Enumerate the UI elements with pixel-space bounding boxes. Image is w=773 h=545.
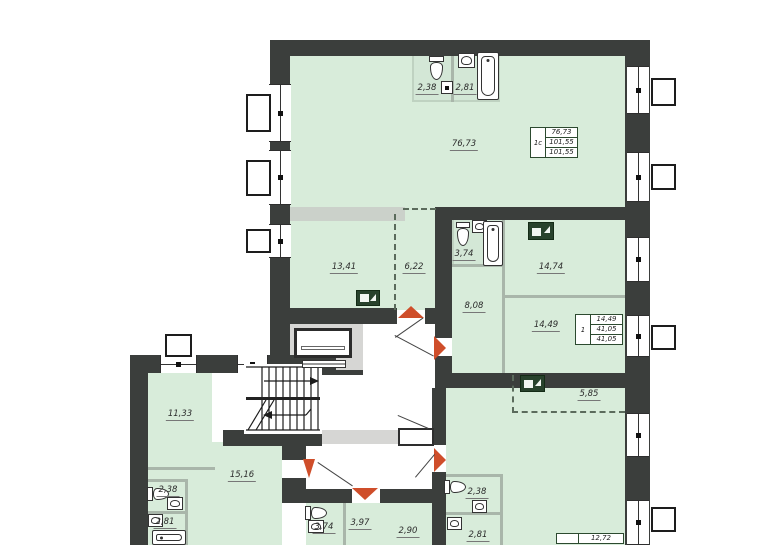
wall <box>435 207 452 338</box>
toilet-icon <box>429 56 444 80</box>
living-area: 14,49 <box>591 315 622 325</box>
window <box>269 84 291 142</box>
wall <box>130 355 148 545</box>
wall <box>282 442 306 460</box>
kitchen-zone-dash <box>512 375 514 413</box>
total-area: 41,05 <box>591 325 622 335</box>
vent-box <box>651 507 676 532</box>
room-label: 2,38 <box>416 84 439 95</box>
window <box>627 315 649 357</box>
vent-box <box>246 229 271 253</box>
floor-plan: 76,73 2,38 2,81 13,41 6,22 3,74 14,74 8,… <box>0 0 773 545</box>
living-area: 12,72 <box>579 534 623 543</box>
wall <box>380 489 446 503</box>
sink-icon <box>472 500 487 513</box>
sink-icon <box>447 517 462 530</box>
toilet-icon <box>456 222 470 246</box>
total-area: 101,55 <box>546 138 577 148</box>
wall <box>270 308 397 324</box>
kitchen-zone-dash <box>512 411 625 413</box>
partition <box>148 479 188 482</box>
window <box>627 66 649 114</box>
partition <box>343 503 346 545</box>
sink-icon <box>167 497 183 510</box>
window <box>269 150 291 205</box>
partition <box>505 295 625 298</box>
partition <box>148 467 215 470</box>
partition <box>446 474 503 477</box>
room-label: 3,97 <box>349 519 372 530</box>
partition <box>500 474 503 545</box>
vent-box <box>651 164 676 190</box>
wall <box>306 489 352 503</box>
room-label: 14,74 <box>537 263 565 274</box>
door-arrow-icon <box>303 459 315 478</box>
wall <box>625 40 650 545</box>
room-label: 6,22 <box>403 263 426 274</box>
room-label: 8,08 <box>463 302 486 313</box>
room-label: 76,73 <box>450 140 478 151</box>
door-arrow-icon <box>434 336 446 360</box>
door-frame <box>398 428 434 446</box>
dashed-partition <box>394 214 396 310</box>
room-label: 2,90 <box>397 527 420 538</box>
living-area: 76,73 <box>546 128 577 138</box>
total-area-2: 41,05 <box>591 335 622 344</box>
bathtub-icon <box>152 530 186 545</box>
room-label: 13,41 <box>330 263 358 274</box>
apartment-info-box-1: 1 14,49 41,05 41,05 <box>575 314 623 345</box>
apartment-info-box-1c: 1c 76,73 101,55 101,55 <box>530 127 578 158</box>
room-label: 2,81 <box>454 84 477 95</box>
room-label: 11,33 <box>166 410 194 421</box>
wall <box>432 388 446 445</box>
dashed-opening <box>403 208 436 210</box>
bathtub-icon <box>483 221 503 266</box>
wall <box>435 207 625 220</box>
vent-box <box>246 94 271 132</box>
total-area-2: 101,55 <box>546 148 577 157</box>
elevator-handrail <box>301 346 345 350</box>
shaft-marker <box>441 81 453 94</box>
room-label: 14,49 <box>532 321 560 332</box>
door-arrow-icon <box>434 448 446 472</box>
wall <box>197 355 237 373</box>
window <box>627 237 649 282</box>
window <box>269 224 291 258</box>
apartment-type: 1 <box>576 315 591 344</box>
room-label: 2,81 <box>467 531 490 542</box>
window <box>627 500 649 545</box>
staircase <box>244 364 322 434</box>
toilet-icon <box>305 506 327 520</box>
window <box>627 413 649 457</box>
partition-strip <box>290 207 405 221</box>
window <box>627 152 649 202</box>
electrical-panel-icon <box>356 290 380 306</box>
door-arrow-icon <box>352 488 378 500</box>
bathtub-icon <box>477 52 499 100</box>
room-label: 3,74 <box>453 250 476 261</box>
vent-box <box>651 325 676 350</box>
vent-box <box>651 78 676 106</box>
toilet-icon <box>444 480 466 494</box>
apartment-type: 1c <box>531 128 546 157</box>
kitchen-sink-icon <box>520 375 545 392</box>
room-label: 2,81 <box>154 518 177 529</box>
door-arrow-icon <box>398 306 424 318</box>
room-label: 3,74 <box>313 523 336 534</box>
room-label: 2,38 <box>157 486 180 497</box>
vent-box <box>165 334 192 357</box>
apartment-info-box-bottom: 12,72 <box>556 533 624 544</box>
room-label: 2,38 <box>466 488 489 499</box>
kitchen-sink-icon <box>528 222 554 240</box>
elevator-car <box>294 328 352 358</box>
wall <box>425 308 435 324</box>
elevator-door <box>302 360 346 368</box>
apartment-type <box>557 534 579 543</box>
room-label: 15,16 <box>228 471 256 482</box>
room-label: 5,85 <box>578 390 601 401</box>
window <box>160 355 197 373</box>
vent-box <box>246 160 271 196</box>
sink-icon <box>458 53 475 68</box>
wall <box>282 478 306 503</box>
room-15-16[interactable] <box>212 442 282 545</box>
